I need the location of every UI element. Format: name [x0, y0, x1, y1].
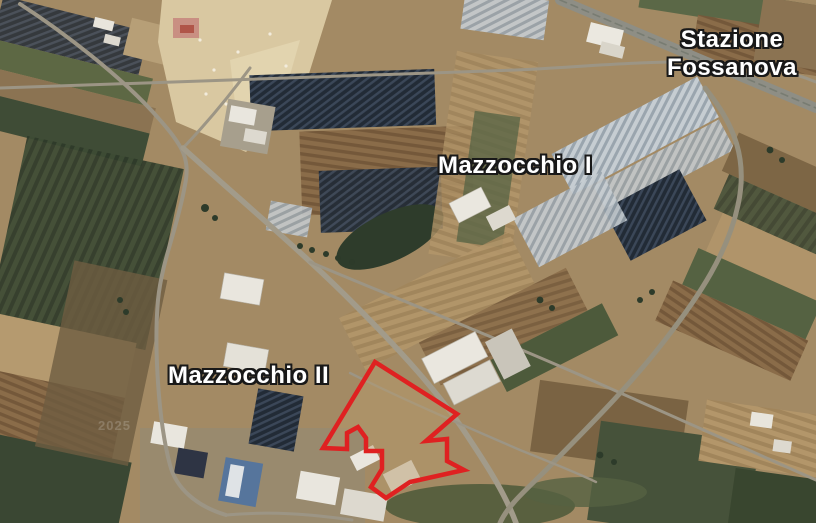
- label-line: Mazzocchio I: [438, 152, 592, 180]
- label-mazzocchio-2: Mazzocchio II: [168, 362, 329, 390]
- imagery-date-watermark: 2025: [98, 418, 131, 433]
- satellite-view: Stazione Fossanova Mazzocchio I Mazzocch…: [0, 0, 816, 523]
- label-stazione-fossanova: Stazione Fossanova: [642, 26, 816, 82]
- label-line: Mazzocchio II: [168, 362, 329, 390]
- label-line: Stazione: [642, 26, 816, 54]
- label-mazzocchio-1: Mazzocchio I: [438, 152, 592, 180]
- label-line: Fossanova: [642, 54, 816, 82]
